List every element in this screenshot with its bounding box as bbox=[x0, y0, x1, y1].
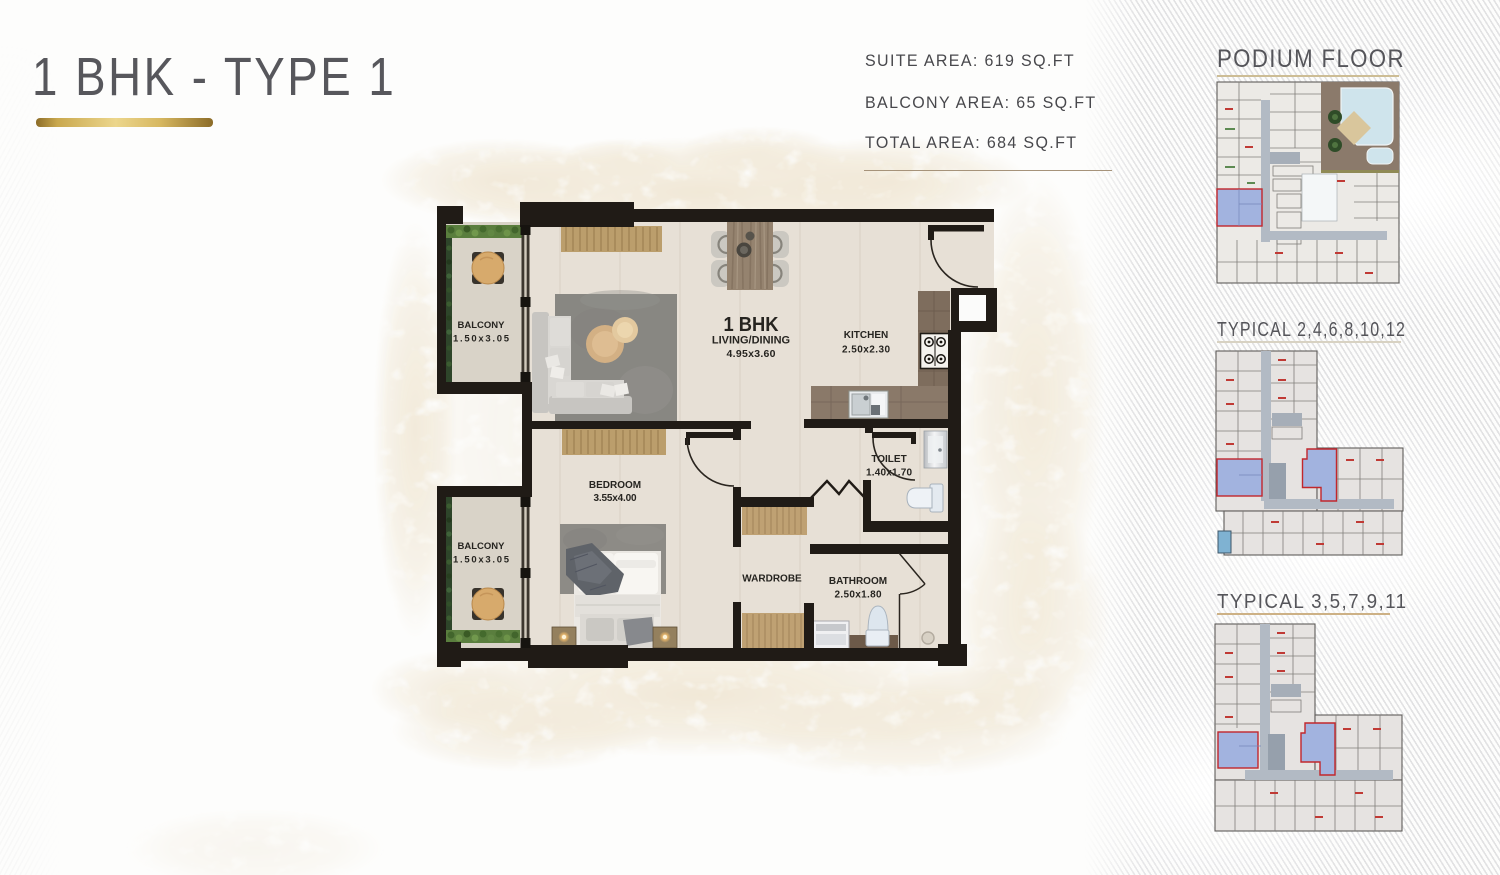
svg-text:1.50x3.05: 1.50x3.05 bbox=[453, 555, 510, 566]
svg-text:TOILET: TOILET bbox=[871, 454, 906, 465]
svg-text:BALCONY: BALCONY bbox=[458, 320, 506, 331]
svg-text:WARDROBE: WARDROBE bbox=[742, 574, 802, 585]
svg-text:2.50x2.30: 2.50x2.30 bbox=[842, 345, 890, 356]
svg-text:BEDROOM: BEDROOM bbox=[589, 480, 641, 491]
svg-text:BALCONY: BALCONY bbox=[458, 541, 506, 552]
svg-text:1.40x1.70: 1.40x1.70 bbox=[866, 468, 912, 479]
svg-text:KITCHEN: KITCHEN bbox=[844, 330, 888, 341]
svg-text:2.50x1.80: 2.50x1.80 bbox=[835, 590, 882, 601]
svg-text:LIVING/DINING: LIVING/DINING bbox=[712, 335, 790, 347]
svg-text:1 BHK: 1 BHK bbox=[724, 314, 780, 336]
svg-text:1.50x3.05: 1.50x3.05 bbox=[453, 334, 510, 345]
svg-text:BATHROOM: BATHROOM bbox=[829, 576, 887, 587]
svg-text:4.95x3.60: 4.95x3.60 bbox=[727, 348, 776, 360]
svg-text:3.55x4.00: 3.55x4.00 bbox=[594, 493, 637, 504]
